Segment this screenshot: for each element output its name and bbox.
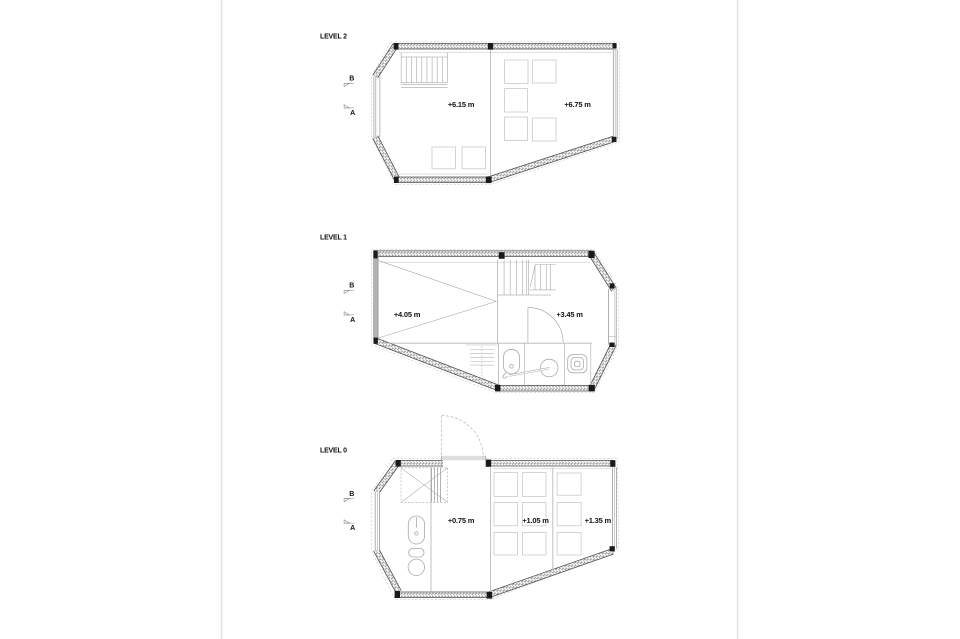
svg-text:A: A <box>350 110 355 117</box>
svg-text:+3.45 m: +3.45 m <box>556 310 583 319</box>
svg-text:A: A <box>350 525 355 532</box>
svg-text:+6.75 m: +6.75 m <box>564 100 591 109</box>
svg-text:+4.05 m: +4.05 m <box>394 310 421 319</box>
svg-text:LEVEL 1: LEVEL 1 <box>320 234 347 241</box>
svg-text:+6.15 m: +6.15 m <box>448 100 475 109</box>
svg-text:+1.35 m: +1.35 m <box>585 516 612 525</box>
svg-text:B: B <box>349 76 354 83</box>
svg-text:LEVEL 0: LEVEL 0 <box>320 447 347 454</box>
svg-text:B: B <box>349 491 354 498</box>
svg-text:LEVEL 2: LEVEL 2 <box>320 34 347 41</box>
svg-text:+0.75 m: +0.75 m <box>448 516 475 525</box>
svg-text:B: B <box>349 283 354 290</box>
svg-text:+1.05 m: +1.05 m <box>522 516 549 525</box>
svg-text:A: A <box>350 317 355 324</box>
